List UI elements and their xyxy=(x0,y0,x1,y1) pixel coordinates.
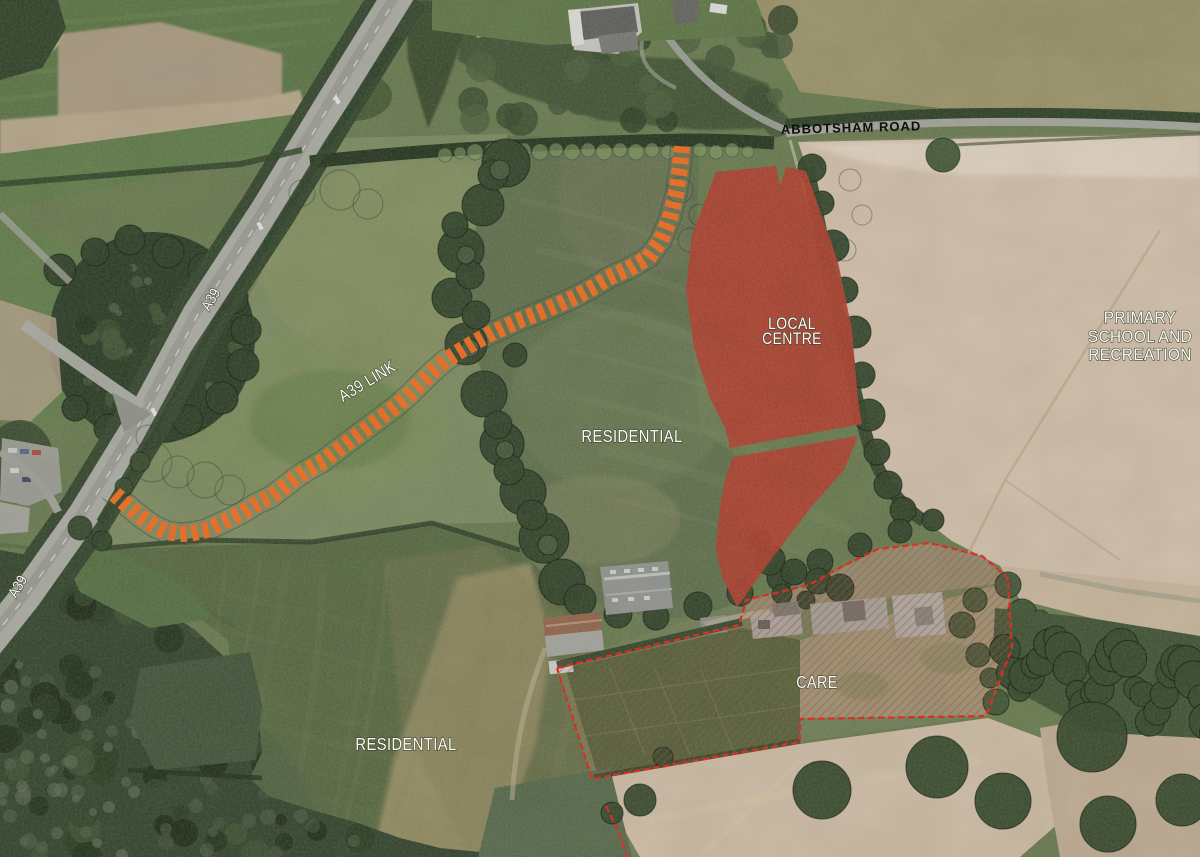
svg-text:CARE: CARE xyxy=(796,673,838,693)
svg-text:RESIDENTIAL: RESIDENTIAL xyxy=(581,427,682,447)
svg-text:RECREATION: RECREATION xyxy=(1088,345,1192,364)
svg-text:RESIDENTIAL: RESIDENTIAL xyxy=(355,735,456,755)
svg-text:SCHOOL AND: SCHOOL AND xyxy=(1088,327,1192,346)
svg-text:PRIMARY: PRIMARY xyxy=(1104,308,1177,327)
svg-text:CENTRE: CENTRE xyxy=(762,330,822,349)
